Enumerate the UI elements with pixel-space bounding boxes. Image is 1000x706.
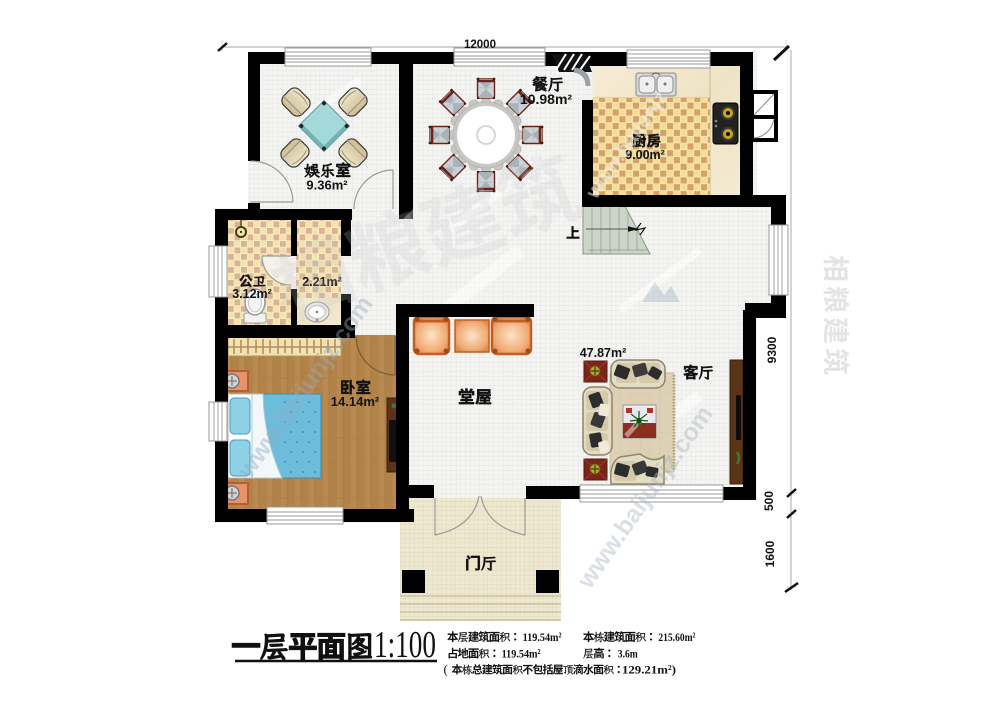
svg-text:14.14m²: 14.14m² (331, 394, 380, 409)
svg-text:3.6m: 3.6m (618, 647, 638, 661)
svg-text:215.60m²: 215.60m² (658, 630, 695, 644)
svg-text:9300: 9300 (765, 336, 779, 363)
svg-text:12000: 12000 (464, 39, 496, 51)
svg-text:500: 500 (762, 491, 776, 511)
svg-text:1600: 1600 (763, 540, 777, 567)
svg-text:(: ( (444, 662, 448, 677)
svg-text:1:100: 1:100 (374, 624, 436, 666)
svg-text:3.12m²: 3.12m² (232, 287, 272, 301)
svg-text:119.54m²: 119.54m² (502, 647, 541, 661)
svg-text:47.87m²: 47.87m² (580, 346, 627, 360)
svg-text:129.21m²): 129.21m²) (622, 663, 676, 677)
svg-text:119.54m²: 119.54m² (523, 630, 562, 644)
svg-text:10.98m²: 10.98m² (520, 91, 572, 107)
svg-text:9.36m²: 9.36m² (306, 178, 348, 193)
